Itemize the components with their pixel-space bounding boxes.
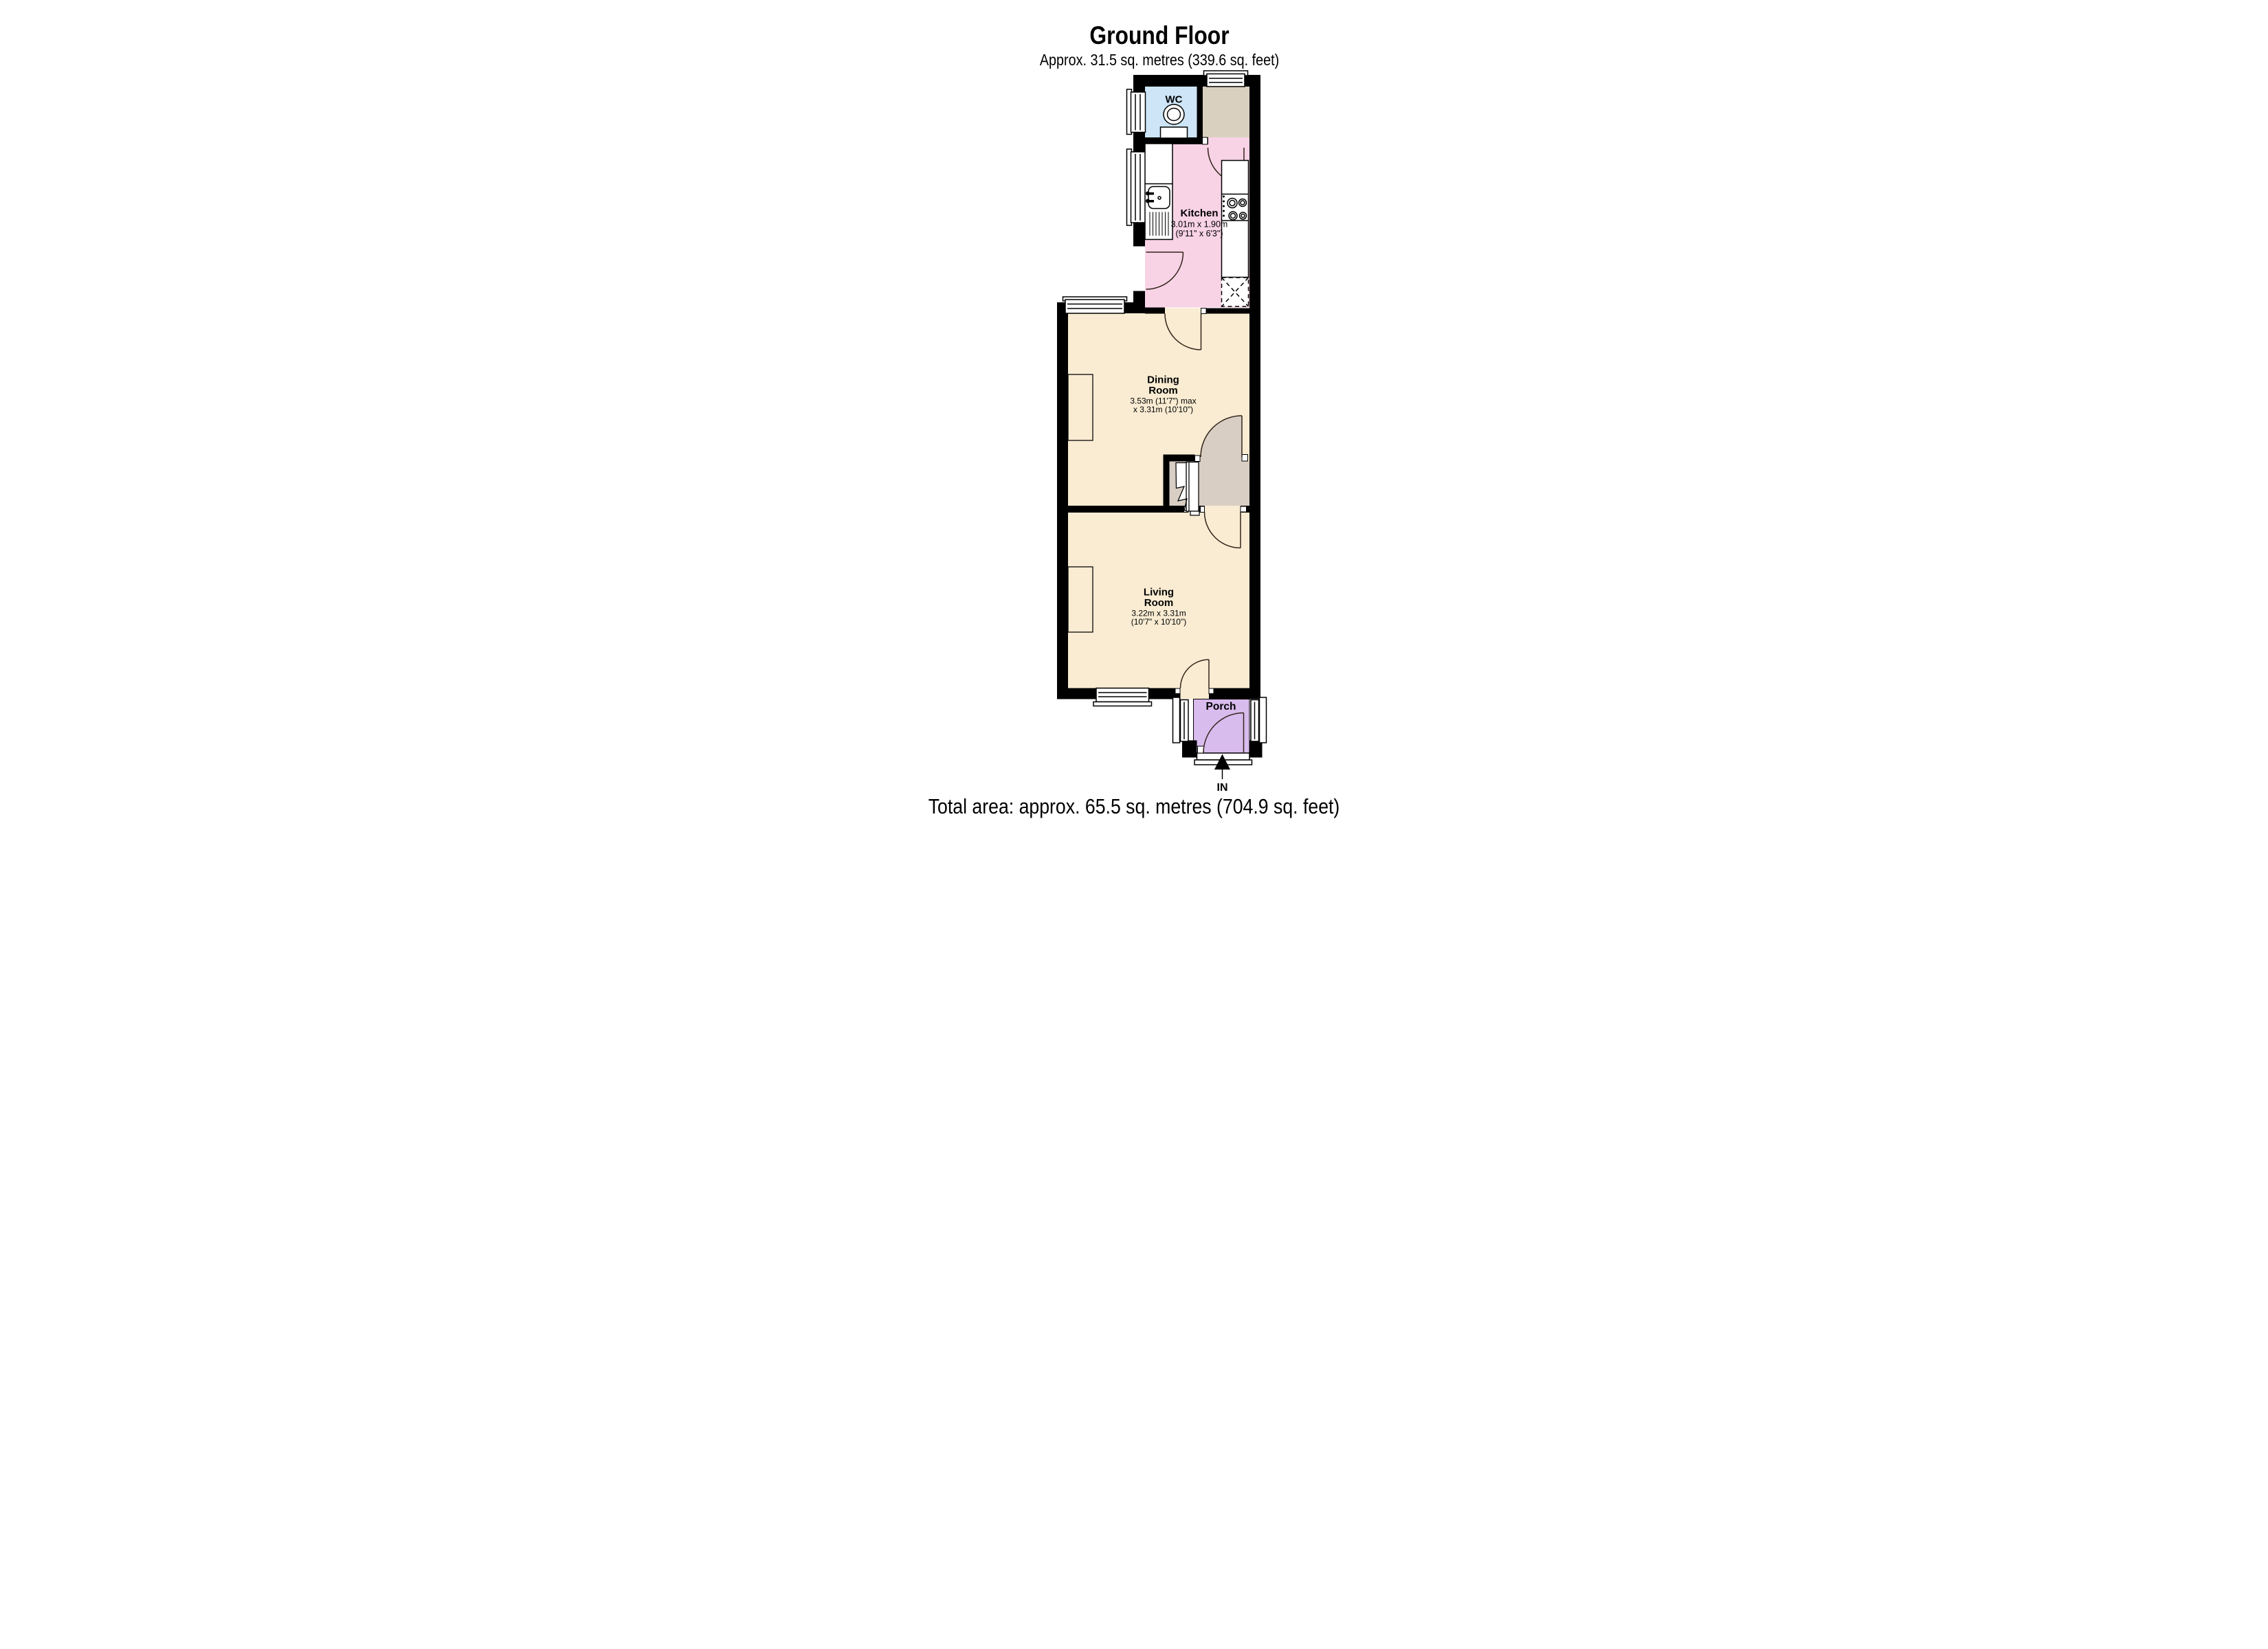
door-jamb — [1203, 137, 1208, 144]
total-area-label: Total area: approx. 65.5 sq. metres (704… — [929, 795, 1340, 818]
wall-segment — [1209, 688, 1249, 699]
room-dims-living-imperial: (10'7" x 10'10") — [1131, 617, 1186, 627]
wall-segment — [1245, 75, 1260, 87]
appliance-icon — [1222, 278, 1249, 306]
room-label-living-2: Room — [1144, 597, 1174, 609]
room-lobby-floor — [1203, 87, 1249, 137]
wall-segment — [1133, 87, 1145, 92]
kitchen-dining-doorway-floor — [1165, 309, 1201, 314]
page-subtitle: Approx. 31.5 sq. metres (339.6 sq. feet) — [1040, 52, 1279, 69]
room-label-kitchen: Kitchen — [1180, 207, 1218, 219]
sink-icon — [1145, 144, 1172, 240]
window-icon — [1204, 71, 1248, 87]
room-label-living-1: Living — [1144, 587, 1174, 598]
wall-segment — [1145, 308, 1165, 314]
wall-segment — [1124, 302, 1134, 313]
entrance-label: IN — [1217, 782, 1228, 794]
room-dims-living-metric: 3.22m x 3.31m — [1131, 609, 1186, 618]
wall-segment — [1057, 688, 1096, 699]
room-dims-dining-metric: 3.53m (11'7") max — [1130, 396, 1196, 406]
wall-segment — [1133, 291, 1145, 314]
window-icon — [1127, 89, 1146, 135]
door-jamb — [1175, 688, 1180, 694]
room-label-dining-1: Dining — [1147, 374, 1179, 386]
wall-segment — [1249, 87, 1260, 699]
wall-segment — [1206, 309, 1249, 314]
hob-icon — [1222, 161, 1249, 278]
floorplan-canvas: Ground Floor Approx. 31.5 sq. metres (33… — [567, 0, 1701, 824]
room-label-porch: Porch — [1206, 701, 1236, 713]
window-icon — [1093, 688, 1152, 706]
wall-segment — [1164, 462, 1170, 506]
door-jamb — [1242, 455, 1248, 462]
wall-segment — [1057, 302, 1068, 699]
page-title: Ground Floor — [1089, 22, 1229, 50]
window-icon — [1173, 697, 1189, 743]
door-jamb — [1201, 506, 1205, 513]
window-icon — [1063, 297, 1127, 313]
room-dims-dining-imperial: x 3.31m (10'10") — [1133, 405, 1193, 414]
room-label-wc: WC — [1166, 94, 1183, 106]
wall-segment — [1057, 506, 1186, 513]
door-jamb — [1241, 506, 1247, 512]
porch-doorway-floor — [1181, 688, 1210, 699]
wall-segment — [1197, 87, 1203, 138]
door-jamb — [1198, 746, 1204, 753]
door-jamb — [1195, 456, 1201, 462]
room-dims-kitchen-imperial: (9'11" x 6'3") — [1175, 229, 1223, 238]
wall-segment — [1182, 741, 1197, 758]
door-jamb — [1201, 309, 1207, 314]
window-icon — [1251, 697, 1267, 743]
floorplan-page: Ground Floor Approx. 31.5 sq. metres (33… — [567, 0, 1701, 824]
room-label-dining-2: Room — [1148, 385, 1178, 396]
hall-living-doorway-floor — [1205, 506, 1241, 513]
door-jamb — [1209, 688, 1214, 694]
wall-segment — [1164, 455, 1195, 462]
kitchen-lobby-doorway-floor — [1208, 137, 1249, 144]
room-dims-kitchen-metric: 3.01m x 1.90m — [1171, 220, 1228, 229]
wall-segment — [1133, 223, 1145, 247]
window-icon — [1127, 149, 1146, 225]
wall-segment — [1133, 75, 1207, 87]
